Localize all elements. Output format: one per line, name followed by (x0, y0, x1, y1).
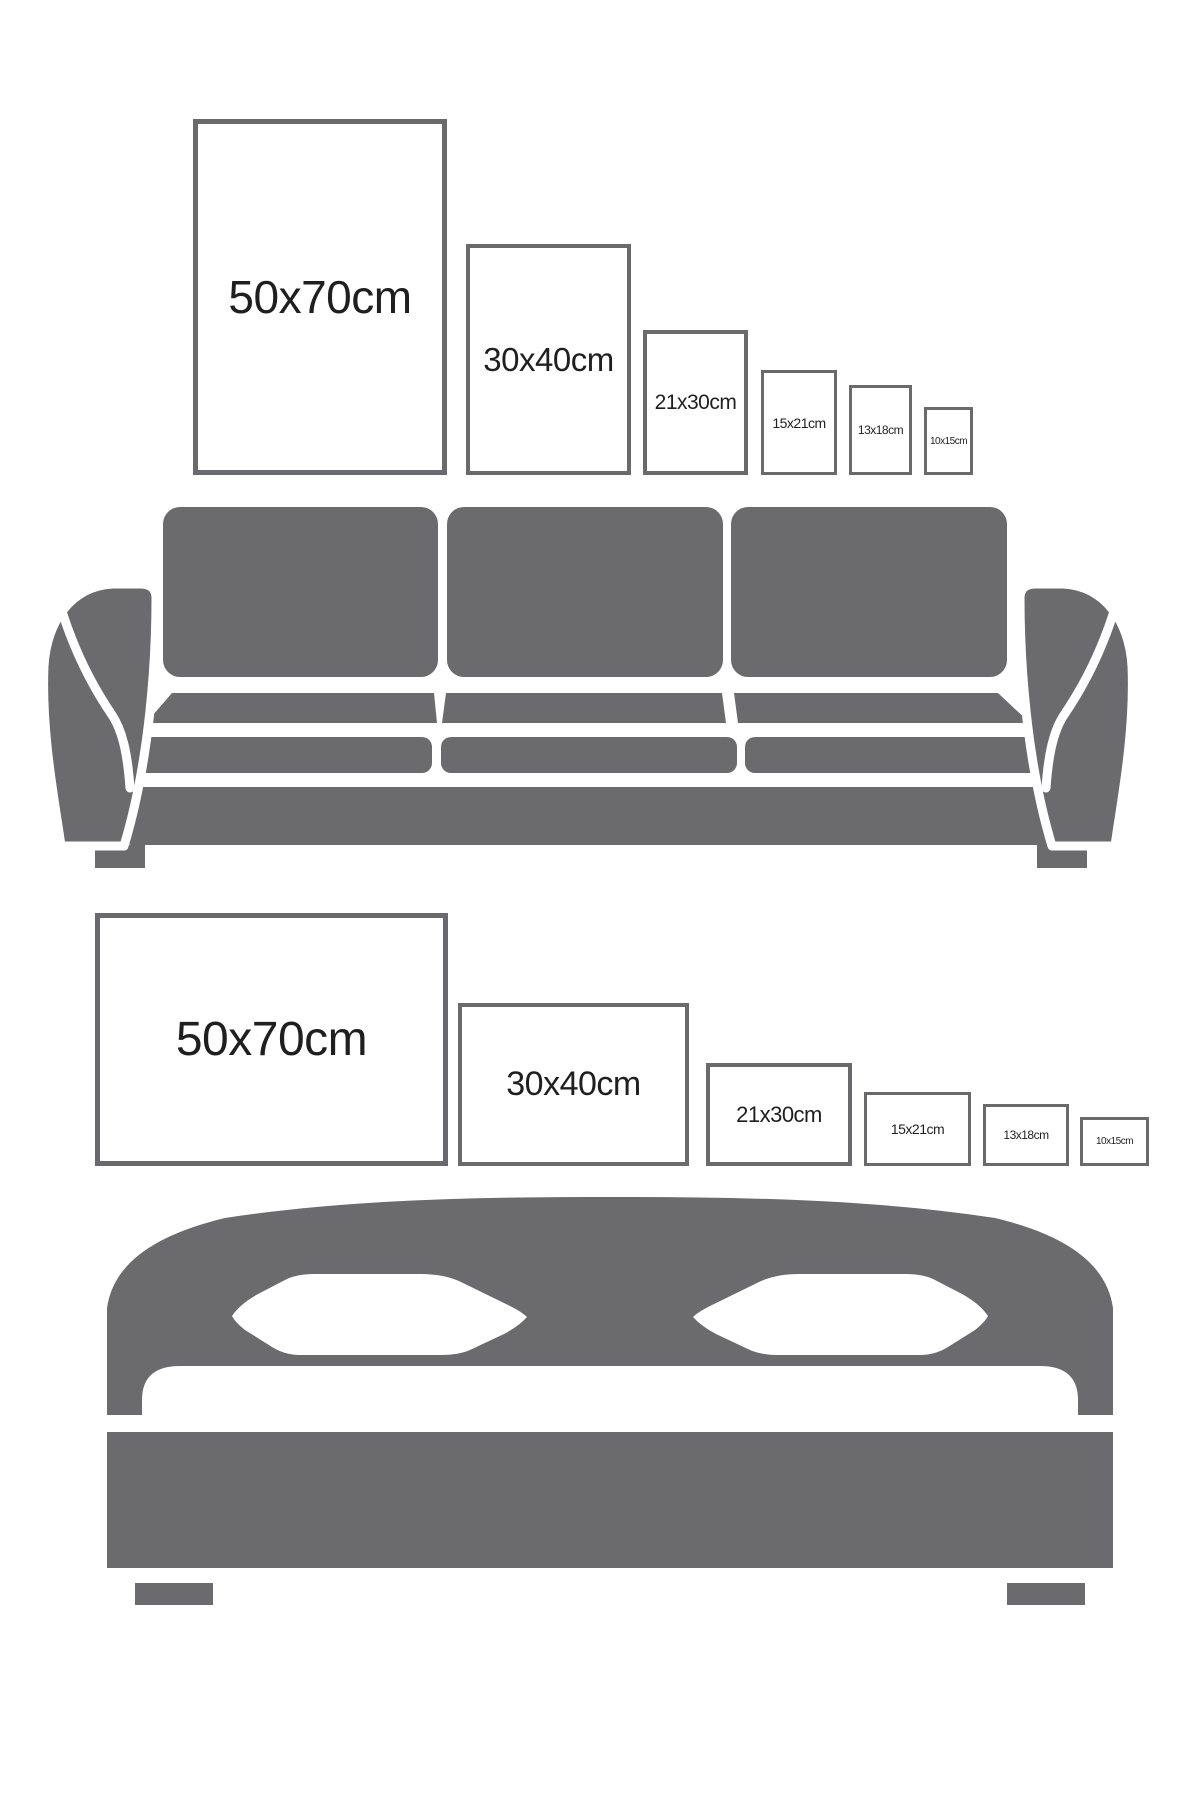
bed-base (107, 1432, 1113, 1568)
poster-size-guide: 50x70cm 30x40cm 21x30cm 15x21cm 13x18cm … (0, 0, 1200, 1800)
frame-size-label: 15x21cm (772, 415, 825, 431)
sofa-seat-deck (442, 693, 726, 723)
frame-size-label: 21x30cm (655, 391, 737, 415)
frame-size-label: 21x30cm (736, 1102, 822, 1128)
frame-size-label: 10x15cm (930, 436, 967, 447)
frame-size-label: 30x40cm (506, 1065, 640, 1104)
sofa-seat-cushion (745, 737, 1041, 773)
frame-size-label: 50x70cm (176, 1012, 367, 1067)
frame-13x18-portrait: 13x18cm (849, 385, 912, 475)
bed-foot (1007, 1583, 1085, 1605)
frame-size-label: 30x40cm (483, 341, 613, 379)
frame-size-label: 10x15cm (1096, 1136, 1133, 1147)
frame-50x70-portrait: 50x70cm (193, 119, 447, 475)
sofa-back-cushion (731, 507, 1007, 677)
sofa-seat-deck (734, 693, 1030, 723)
frame-21x30-landscape: 21x30cm (706, 1063, 852, 1166)
sofa-back-cushion (447, 507, 723, 677)
sofa-seat-cushion (137, 737, 432, 773)
bed-foot (135, 1583, 213, 1605)
sofa-base (126, 787, 1057, 845)
frame-13x18-landscape: 13x18cm (983, 1104, 1069, 1166)
frame-size-label: 15x21cm (891, 1121, 944, 1137)
bed-icon (107, 1197, 1113, 1605)
frame-15x21-portrait: 15x21cm (761, 370, 837, 475)
frame-size-label: 13x18cm (1003, 1128, 1048, 1142)
frame-30x40-landscape: 30x40cm (458, 1003, 689, 1166)
frame-size-label: 13x18cm (858, 423, 903, 437)
sofa-icon (44, 507, 1133, 868)
frame-10x15-landscape: 10x15cm (1080, 1117, 1149, 1166)
sofa-back-cushion (163, 507, 438, 677)
sofa-seat-deck (146, 693, 437, 723)
frame-21x30-portrait: 21x30cm (643, 330, 748, 475)
frame-30x40-portrait: 30x40cm (466, 244, 631, 475)
sofa-seat-cushion (441, 737, 737, 773)
frame-15x21-landscape: 15x21cm (864, 1092, 971, 1166)
frame-size-label: 50x70cm (228, 270, 411, 324)
frame-10x15-portrait: 10x15cm (924, 407, 973, 475)
frame-50x70-landscape: 50x70cm (95, 913, 448, 1166)
